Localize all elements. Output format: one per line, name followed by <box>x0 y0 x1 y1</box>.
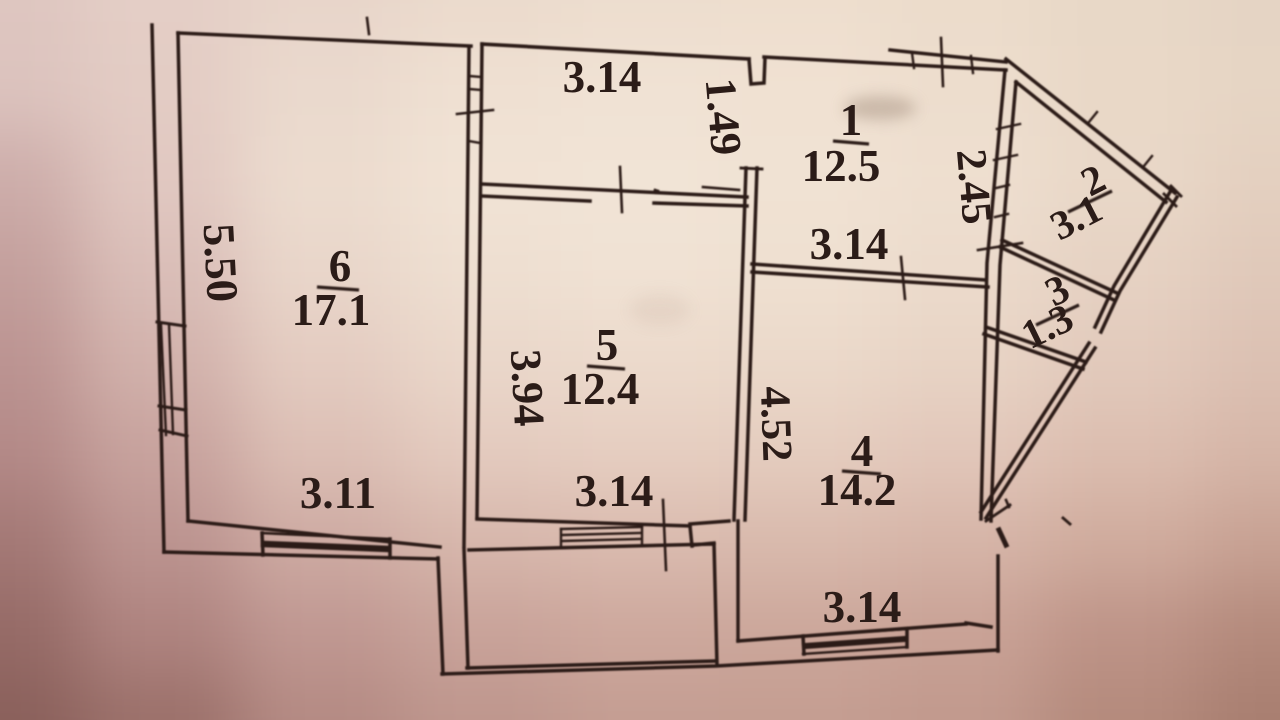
svg-text:5.50: 5.50 <box>194 222 248 303</box>
svg-text:1.49: 1.49 <box>696 76 752 157</box>
svg-text:6: 6 <box>329 241 352 291</box>
svg-text:3.14: 3.14 <box>823 582 902 632</box>
svg-text:4.52: 4.52 <box>751 385 801 462</box>
svg-text:3.14: 3.14 <box>810 219 889 269</box>
svg-text:5: 5 <box>596 320 619 370</box>
svg-text:12.4: 12.4 <box>561 364 640 414</box>
svg-text:12.5: 12.5 <box>802 141 881 191</box>
svg-text:3.94: 3.94 <box>501 348 554 427</box>
svg-text:2.45: 2.45 <box>947 147 1000 226</box>
svg-text:3.14: 3.14 <box>563 52 642 102</box>
svg-text:1: 1 <box>840 95 863 145</box>
svg-text:3.11: 3.11 <box>300 468 376 518</box>
svg-text:17.1: 17.1 <box>292 285 371 335</box>
svg-text:3.14: 3.14 <box>575 466 654 516</box>
